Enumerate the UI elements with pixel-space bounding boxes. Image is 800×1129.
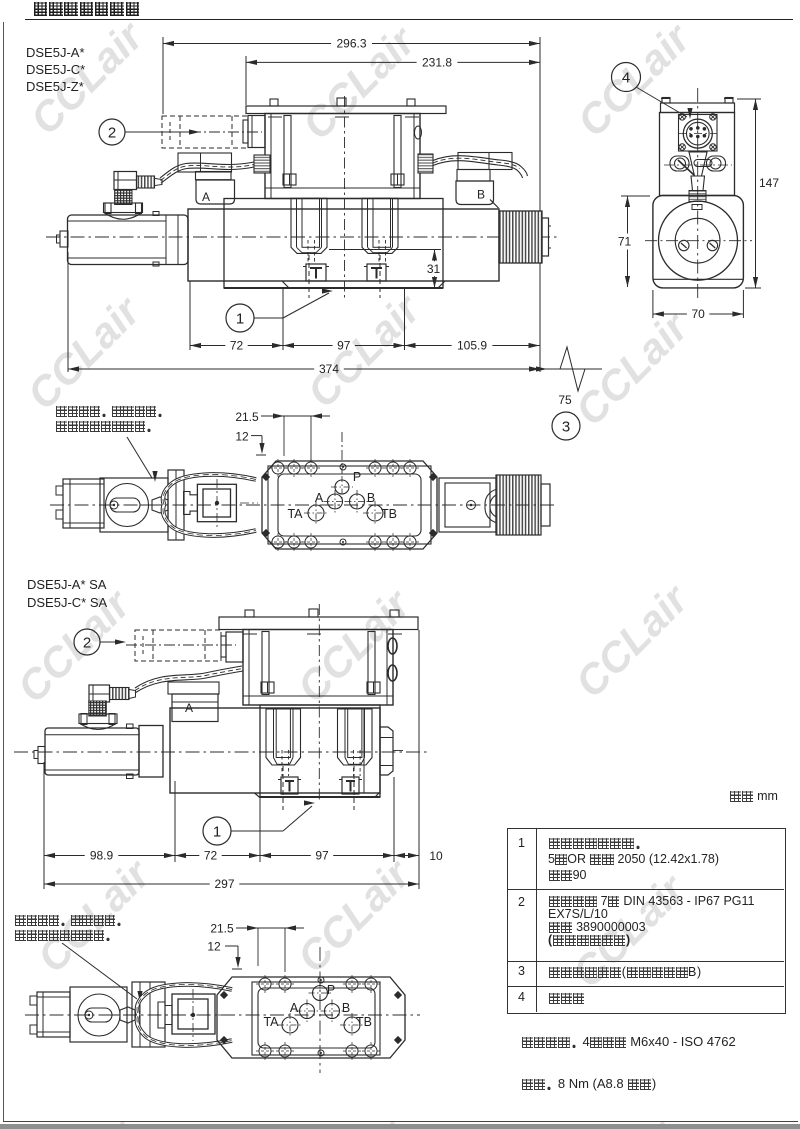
svg-text:70: 70: [691, 307, 705, 321]
svg-text:B: B: [367, 491, 375, 505]
svg-text:TA: TA: [287, 507, 303, 521]
svg-text:TA: TA: [263, 1015, 279, 1029]
svg-text:105.9: 105.9: [457, 339, 487, 353]
svg-text:374: 374: [319, 362, 339, 376]
svg-text:TB: TB: [356, 1015, 372, 1029]
svg-text:71: 71: [618, 235, 632, 249]
svg-text:12: 12: [235, 430, 249, 444]
svg-text:A: A: [290, 1001, 299, 1015]
svg-text:A: A: [202, 190, 210, 204]
svg-text:12: 12: [207, 940, 221, 954]
svg-text:10: 10: [429, 849, 443, 863]
svg-text:72: 72: [204, 849, 218, 863]
svg-text:98.9: 98.9: [90, 849, 114, 863]
svg-text:B: B: [342, 1001, 350, 1015]
svg-text:97: 97: [337, 339, 351, 353]
svg-text:1: 1: [236, 311, 244, 328]
svg-text:2: 2: [83, 635, 91, 652]
svg-text:97: 97: [315, 849, 329, 863]
svg-text:296.3: 296.3: [336, 37, 366, 51]
svg-text:21.5: 21.5: [210, 922, 234, 936]
svg-text:TB: TB: [381, 507, 397, 521]
svg-text:3: 3: [562, 419, 570, 436]
svg-text:72: 72: [230, 339, 244, 353]
svg-text:231.8: 231.8: [422, 56, 452, 70]
svg-text:147: 147: [759, 176, 779, 190]
svg-text:P: P: [353, 470, 361, 484]
svg-text:2: 2: [108, 125, 116, 142]
svg-text:31: 31: [427, 262, 441, 276]
svg-text:1: 1: [213, 824, 221, 841]
svg-text:P: P: [327, 983, 335, 997]
svg-text:21.5: 21.5: [235, 410, 259, 424]
svg-text:4: 4: [622, 70, 630, 87]
svg-text:B: B: [477, 188, 485, 202]
svg-text:297: 297: [214, 877, 234, 891]
svg-text:75: 75: [558, 393, 572, 407]
